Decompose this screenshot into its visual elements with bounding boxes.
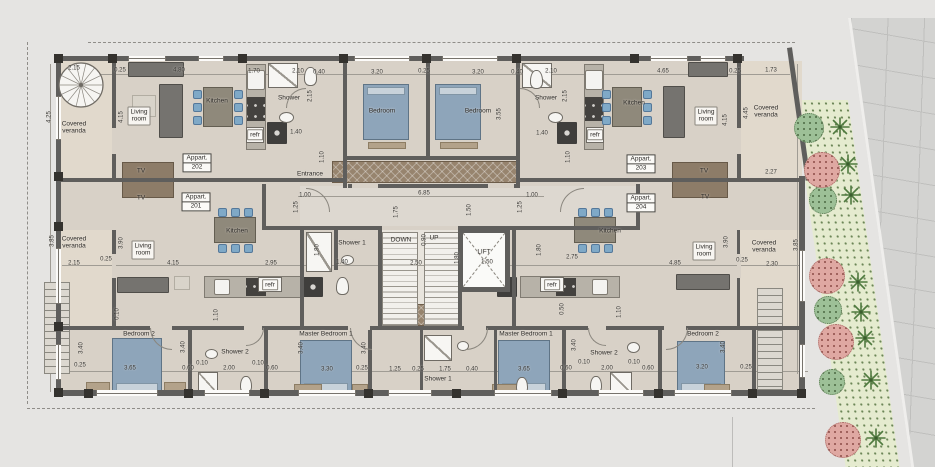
window: [204, 390, 250, 396]
wall: [752, 330, 756, 390]
window: [800, 250, 805, 302]
shower-stall-icon: [306, 232, 332, 272]
door-opening: [737, 128, 741, 154]
wall: [334, 228, 338, 270]
chair-icon: [602, 103, 611, 112]
toilet-icon: [336, 277, 349, 295]
building-plan: Covered verandaCovered verandaCovered ve…: [0, 0, 935, 467]
pillar: [797, 389, 806, 398]
wall: [343, 56, 347, 188]
window: [128, 56, 166, 61]
pillar: [654, 389, 663, 398]
chair-icon: [602, 90, 611, 99]
door-opening: [352, 184, 378, 188]
bench-icon: [440, 142, 478, 149]
tree-icon: [804, 152, 840, 188]
chair-icon: [234, 116, 243, 125]
basin-icon: [548, 112, 563, 123]
entrance-mat: [332, 161, 518, 183]
basin-icon: [205, 349, 218, 359]
chair-icon: [643, 103, 652, 112]
shower-stall-icon: [268, 63, 298, 88]
dining-table-icon: [214, 217, 256, 243]
palm-icon: [847, 271, 869, 293]
wall: [426, 60, 430, 160]
pillar: [452, 389, 461, 398]
basin-icon: [627, 342, 640, 353]
side-table-icon: [132, 95, 156, 117]
chair-icon: [193, 116, 202, 125]
window: [650, 56, 688, 61]
dimension-line: [298, 196, 544, 197]
sofa-icon: [688, 62, 728, 77]
window: [494, 390, 552, 396]
bench-icon: [368, 142, 406, 149]
wall: [512, 226, 516, 328]
wall: [188, 330, 192, 390]
wall: [262, 184, 266, 230]
wall: [737, 60, 741, 178]
window: [442, 56, 498, 61]
palm-icon: [865, 427, 887, 449]
dining-table-icon: [203, 87, 233, 127]
tree-icon: [794, 113, 824, 143]
washing-machine-icon: [303, 277, 323, 297]
kitchen-sink-icon: [214, 279, 230, 295]
pillar: [630, 54, 639, 63]
wall: [494, 330, 497, 390]
window: [354, 56, 410, 61]
external-stairs: [757, 288, 783, 390]
pillar: [54, 322, 63, 331]
chair-icon: [604, 244, 613, 253]
apartment-label: Appart.204: [627, 193, 656, 212]
bed-icon: [363, 84, 409, 140]
bed-icon: [435, 84, 481, 140]
sofa-icon: [159, 84, 183, 138]
window: [56, 248, 61, 304]
fridge-icon: [258, 277, 282, 292]
pillar: [238, 54, 247, 63]
chair-icon: [218, 208, 227, 217]
pillar: [184, 389, 193, 398]
window: [800, 344, 805, 378]
wall: [112, 230, 116, 326]
fridge-icon: [246, 127, 264, 143]
pillar: [54, 222, 63, 231]
chair-icon: [218, 244, 227, 253]
chair-icon: [578, 244, 587, 253]
basin-icon: [341, 255, 354, 265]
tree-icon: [809, 258, 845, 294]
apartment-label: Appart.201: [182, 192, 211, 211]
door-opening: [737, 254, 741, 278]
pillar: [339, 54, 348, 63]
chair-icon: [643, 90, 652, 99]
floor-plan-canvas: Covered verandaCovered verandaCovered ve…: [0, 0, 935, 467]
sofa-icon: [128, 62, 184, 77]
stair-flight-down: [382, 232, 418, 326]
palm-icon: [829, 116, 851, 138]
window: [198, 56, 224, 61]
wall: [658, 330, 662, 390]
palm-icon: [854, 327, 876, 349]
tree-icon: [809, 186, 837, 214]
apartment-label: Appart.203: [627, 154, 656, 173]
pillar: [512, 54, 521, 63]
pillar: [748, 389, 757, 398]
spiral-staircase-icon: [58, 62, 104, 108]
pillar: [108, 54, 117, 63]
chair-icon: [193, 103, 202, 112]
sofa-icon: [676, 274, 730, 290]
chair-icon: [591, 208, 600, 217]
dining-table-icon: [574, 217, 616, 243]
window: [700, 56, 726, 61]
wall: [300, 226, 304, 328]
bed-icon: [112, 338, 162, 394]
pillar: [260, 389, 269, 398]
wall: [56, 178, 346, 182]
wall: [737, 230, 740, 326]
basin-icon: [279, 112, 294, 123]
palm-icon: [837, 153, 859, 175]
pillar: [558, 389, 567, 398]
lift-shaft: [458, 228, 510, 292]
fridge-icon: [586, 127, 604, 143]
pillar: [733, 54, 742, 63]
stove-icon: [247, 97, 265, 121]
chair-icon: [604, 208, 613, 217]
toilet-icon: [304, 67, 317, 86]
kitchen-sink-icon: [592, 279, 608, 295]
kitchen-sink-icon: [585, 70, 603, 90]
tree-icon: [819, 369, 845, 395]
wall: [346, 156, 520, 160]
stove-icon: [585, 97, 603, 121]
toilet-icon: [530, 70, 543, 89]
wall: [562, 330, 566, 390]
wall: [516, 56, 520, 188]
dining-table-icon: [612, 87, 642, 127]
wall: [264, 330, 268, 390]
pillar: [364, 389, 373, 398]
window: [598, 390, 644, 396]
window: [56, 344, 61, 380]
window: [388, 390, 432, 396]
lift-cross-icon: [463, 233, 505, 287]
chair-icon: [234, 103, 243, 112]
tree-icon: [818, 324, 854, 360]
side-table-icon: [174, 276, 190, 290]
fridge-icon: [540, 277, 564, 292]
chair-icon: [643, 116, 652, 125]
wall: [262, 226, 380, 230]
palm-icon: [860, 369, 882, 391]
tree-icon: [814, 296, 842, 324]
sofa-icon: [663, 86, 685, 138]
palm-icon: [850, 301, 872, 323]
window: [298, 390, 356, 396]
chair-icon: [193, 90, 202, 99]
sofa-icon: [117, 277, 169, 293]
pillar: [84, 389, 93, 398]
window: [96, 390, 158, 396]
chair-icon: [244, 208, 253, 217]
chair-icon: [602, 116, 611, 125]
pillar: [54, 388, 63, 397]
door-opening: [112, 128, 116, 154]
chair-icon: [234, 90, 243, 99]
wall: [112, 60, 116, 178]
washing-machine-icon: [557, 122, 577, 144]
chair-icon: [231, 208, 240, 217]
chair-icon: [244, 244, 253, 253]
kitchen-sink-icon: [247, 70, 265, 90]
shower-stall-icon: [424, 335, 452, 361]
pillar: [54, 172, 63, 181]
chair-icon: [231, 244, 240, 253]
pillar: [422, 54, 431, 63]
wall: [378, 226, 382, 330]
apartment-label: Appart.202: [183, 153, 212, 172]
tree-icon: [825, 422, 861, 458]
door-opening: [488, 184, 514, 188]
window: [674, 390, 732, 396]
door-opening: [112, 254, 116, 278]
stair-flight-up: [424, 232, 460, 326]
chair-icon: [591, 244, 600, 253]
washing-machine-icon: [267, 122, 287, 144]
palm-icon: [840, 184, 862, 206]
wall: [420, 330, 423, 390]
wall: [518, 178, 804, 182]
